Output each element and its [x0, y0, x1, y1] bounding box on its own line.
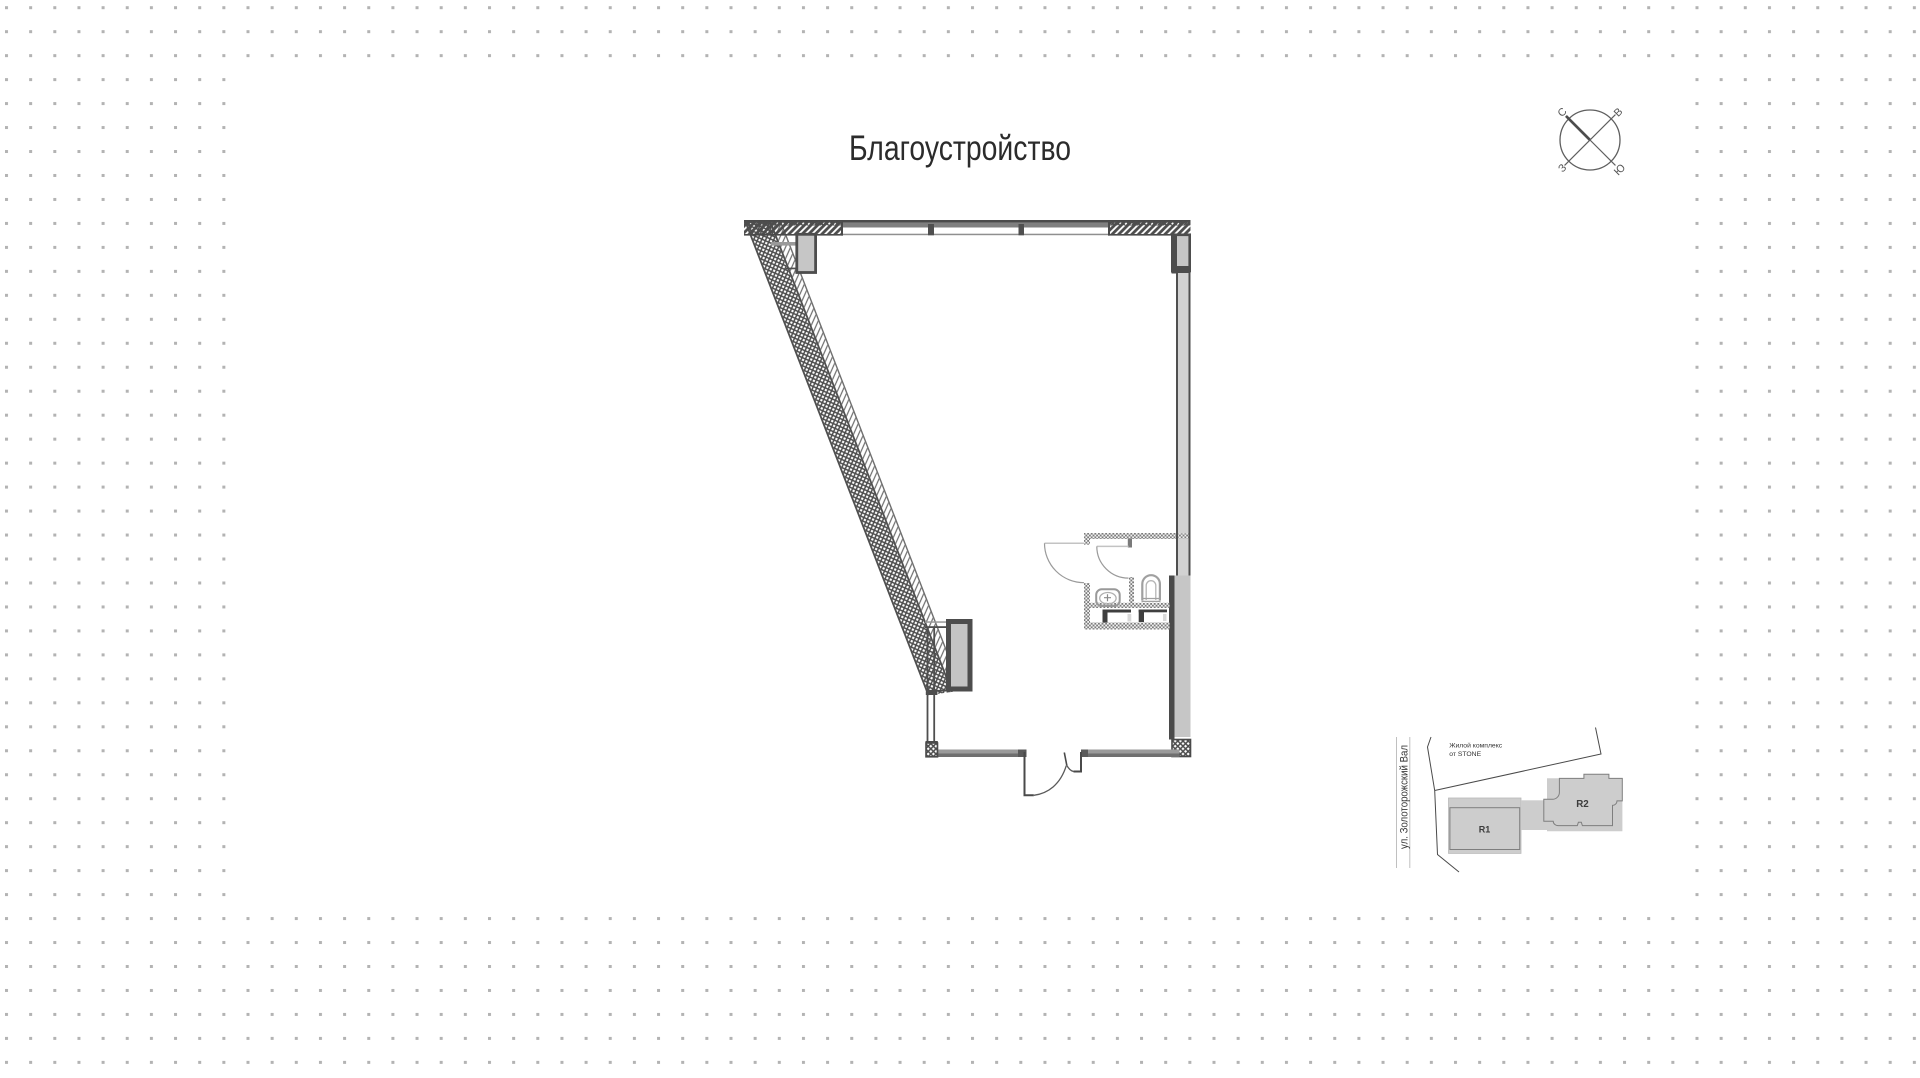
svg-text:Благоустройство: Благоустройство [849, 128, 1071, 168]
svg-text:R1: R1 [1479, 825, 1491, 835]
svg-text:ул. Золоторожский Вал: ул. Золоторожский Вал [1399, 745, 1411, 849]
svg-text:R2: R2 [1576, 799, 1589, 810]
svg-text:от STONE: от STONE [1449, 751, 1481, 758]
svg-text:Жилой комплекс: Жилой комплекс [1449, 742, 1503, 750]
